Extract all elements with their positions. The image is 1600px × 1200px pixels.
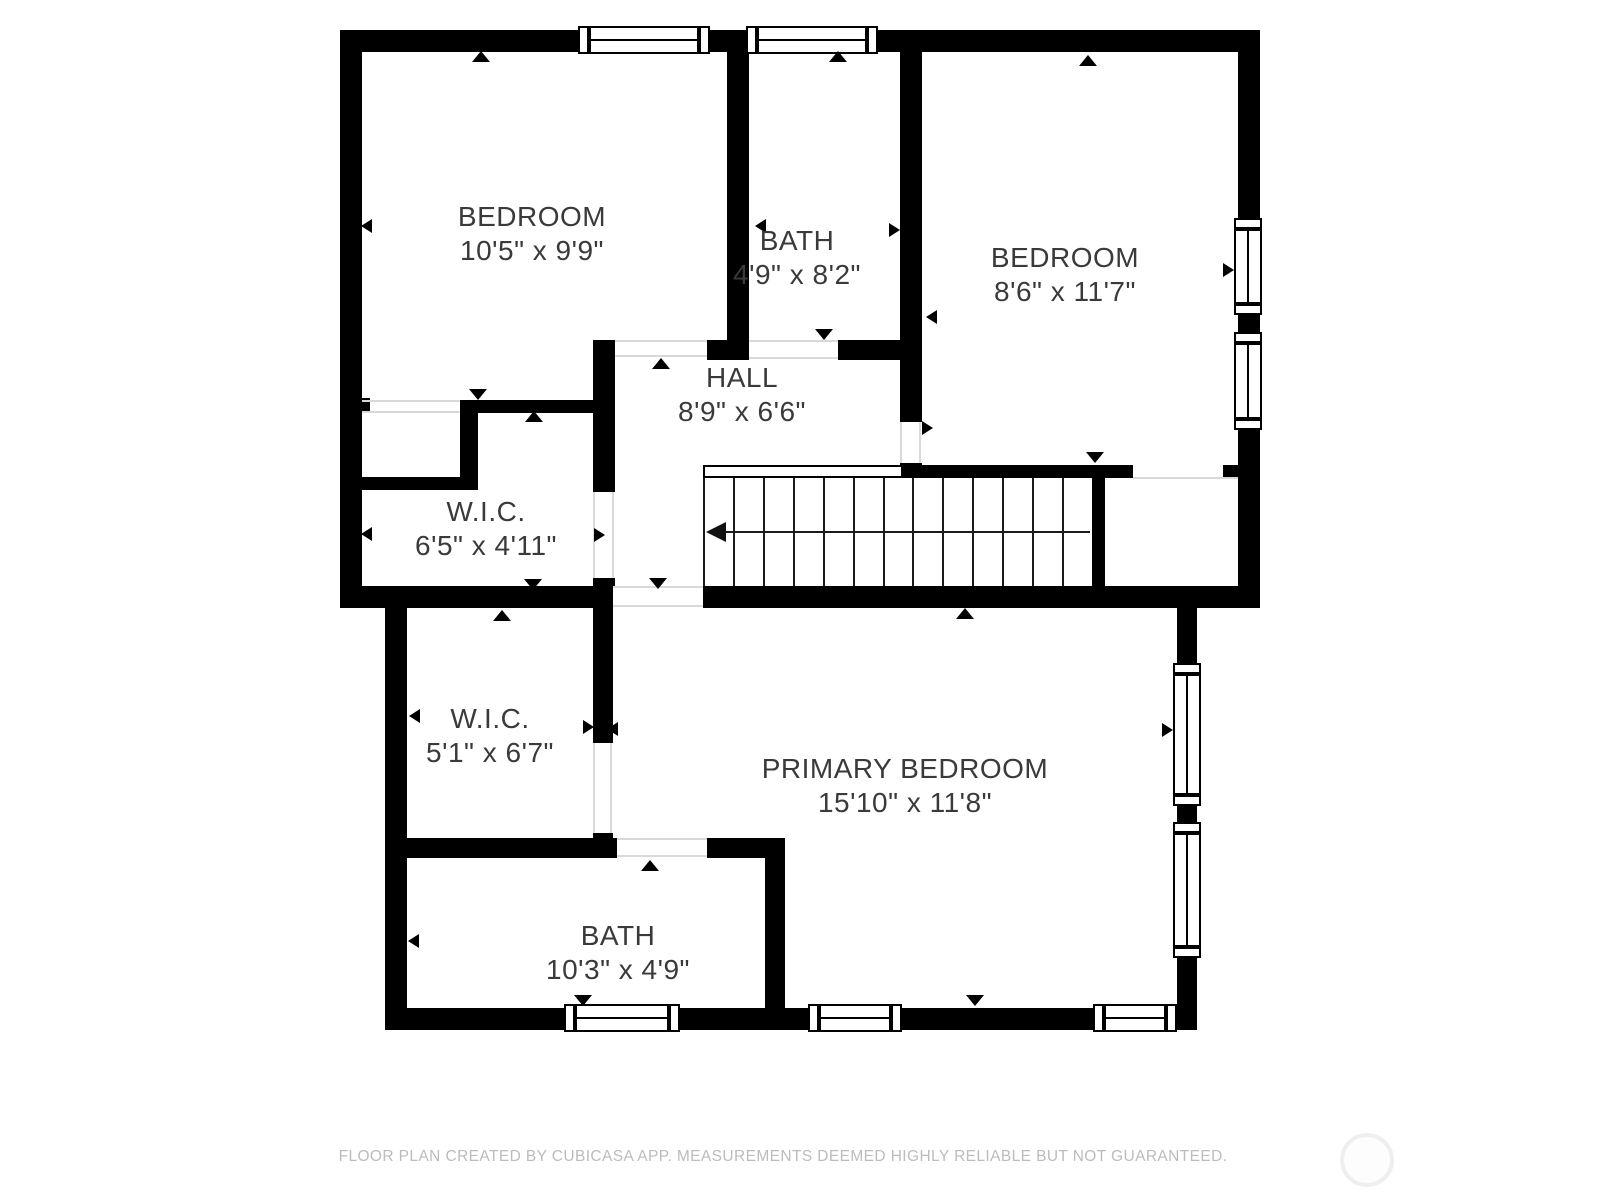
- window-frame-cap: [1175, 831, 1199, 835]
- window-frame-cap: [667, 1006, 671, 1030]
- room-label-hall: HALL 8'9" x 6'6": [678, 361, 806, 429]
- wall: [707, 340, 749, 360]
- door-marker-up-icon: [525, 411, 543, 422]
- disclaimer-text: FLOOR PLAN CREATED BY CUBICASA APP. MEAS…: [339, 1148, 1228, 1166]
- room-label-bedroom-top-right: BEDROOM 8'6" x 11'7": [991, 241, 1139, 309]
- door-marker-down-icon: [491, 840, 509, 851]
- room-name: BATH: [546, 919, 690, 953]
- wall: [1238, 30, 1260, 608]
- room-name: BEDROOM: [991, 241, 1139, 275]
- stairs-direction-line: [714, 531, 1090, 533]
- wall: [407, 838, 617, 858]
- wall: [900, 465, 1133, 478]
- window-frame-cap: [1236, 302, 1260, 306]
- window-frame-cap: [865, 28, 869, 52]
- wall: [727, 52, 749, 340]
- door-marker-right-icon: [889, 223, 900, 237]
- door-marker-right-icon: [594, 528, 605, 542]
- door-marker-right-icon: [922, 421, 933, 435]
- door-opening-line: [749, 357, 838, 359]
- wall: [1092, 478, 1105, 586]
- window-symbol: [1093, 1004, 1177, 1032]
- door-opening-line: [362, 411, 460, 413]
- door-opening-line: [593, 743, 595, 833]
- room-name: W.I.C.: [415, 495, 557, 529]
- cubicasa-watermark-icon: [1340, 1133, 1394, 1187]
- wall: [340, 586, 613, 608]
- window-glass-line: [820, 1017, 890, 1019]
- wall: [765, 838, 785, 1008]
- wall: [703, 586, 1260, 608]
- room-name: BATH: [733, 224, 861, 258]
- door-marker-right-icon: [1223, 263, 1234, 277]
- window-glass-line: [1186, 675, 1188, 794]
- room-label-bath-top: BATH 4'9" x 8'2": [733, 224, 861, 292]
- door-marker-up-icon: [641, 860, 659, 871]
- room-label-bedroom-top-left: BEDROOM 10'5" x 9'9": [458, 200, 606, 268]
- wall: [362, 477, 478, 490]
- door-opening-line: [613, 605, 703, 607]
- door-opening-line: [919, 422, 921, 463]
- window-symbol: [564, 1004, 680, 1032]
- window-symbol: [1173, 822, 1201, 958]
- window-frame-cap: [573, 1006, 577, 1030]
- window-frame-cap: [697, 28, 701, 52]
- room-label-primary-bedroom: PRIMARY BEDROOM 15'10" x 11'8": [762, 752, 1049, 820]
- door-marker-down-icon: [649, 578, 667, 589]
- wall: [340, 30, 362, 608]
- room-label-wic-lower: W.I.C. 5'1" x 6'7": [426, 702, 554, 770]
- window-symbol: [578, 26, 710, 54]
- window-frame-cap: [1236, 417, 1260, 421]
- wall: [593, 578, 615, 588]
- door-marker-right-icon: [1162, 723, 1173, 737]
- window-frame-cap: [1236, 341, 1260, 345]
- door-marker-up-icon: [1079, 55, 1097, 66]
- window-symbol: [808, 1004, 902, 1032]
- window-glass-line: [576, 1017, 668, 1019]
- window-frame-cap: [1175, 672, 1199, 676]
- door-marker-left-icon: [408, 934, 419, 948]
- window-frame-cap: [1175, 793, 1199, 797]
- door-marker-left-icon: [361, 527, 372, 541]
- window-frame-cap: [889, 1006, 893, 1030]
- floor-plan-canvas: BEDROOM 10'5" x 9'9" BATH 4'9" x 8'2" BE…: [0, 0, 1600, 1200]
- window-symbol: [1234, 218, 1262, 315]
- door-marker-left-icon: [409, 709, 420, 723]
- door-opening-line: [615, 340, 707, 342]
- wall: [385, 608, 407, 1030]
- room-dimensions: 8'9" x 6'6": [678, 395, 806, 429]
- window-glass-line: [758, 39, 866, 41]
- window-frame-cap: [755, 28, 759, 52]
- door-marker-down-icon: [524, 579, 542, 590]
- door-marker-up-icon: [493, 610, 511, 621]
- room-dimensions: 6'5" x 4'11": [415, 529, 557, 563]
- wall: [900, 52, 922, 340]
- stair-railing: [703, 465, 903, 478]
- room-dimensions: 10'3" x 4'9": [546, 953, 690, 987]
- stair-tread-line: [703, 478, 705, 586]
- door-marker-left-icon: [361, 219, 372, 233]
- room-name: BEDROOM: [458, 200, 606, 234]
- door-marker-up-icon: [956, 608, 974, 619]
- room-dimensions: 15'10" x 11'8": [762, 786, 1049, 820]
- window-frame-cap: [1164, 1006, 1168, 1030]
- window-glass-line: [1105, 1017, 1165, 1019]
- door-marker-down-icon: [966, 995, 984, 1006]
- window-symbol: [1234, 332, 1262, 430]
- door-opening-line: [749, 340, 838, 342]
- window-symbol: [1173, 663, 1201, 806]
- door-marker-up-icon: [652, 358, 670, 369]
- room-label-wic-upper: W.I.C. 6'5" x 4'11": [415, 495, 557, 563]
- room-name: W.I.C.: [426, 702, 554, 736]
- door-opening-line: [612, 492, 614, 578]
- door-marker-down-icon: [815, 329, 833, 340]
- room-dimensions: 10'5" x 9'9": [458, 234, 606, 268]
- door-opening-line: [617, 838, 707, 840]
- window-frame-cap: [817, 1006, 821, 1030]
- window-frame-cap: [1236, 227, 1260, 231]
- wall: [385, 1008, 1197, 1030]
- room-dimensions: 5'1" x 6'7": [426, 736, 554, 770]
- door-marker-up-icon: [829, 51, 847, 62]
- door-opening-line: [362, 400, 460, 402]
- window-glass-line: [590, 39, 698, 41]
- window-glass-line: [1247, 344, 1249, 418]
- wall: [900, 340, 922, 422]
- door-marker-up-icon: [472, 51, 490, 62]
- stairs-direction-arrow-icon: [706, 522, 726, 542]
- window-glass-line: [1247, 230, 1249, 303]
- door-marker-down-icon: [1086, 452, 1104, 463]
- door-marker-right-icon: [583, 720, 594, 734]
- room-label-bath-lower: BATH 10'3" x 4'9": [546, 919, 690, 987]
- room-dimensions: 4'9" x 8'2": [733, 258, 861, 292]
- wall: [593, 340, 615, 492]
- door-marker-down-icon: [574, 995, 592, 1006]
- door-opening-line: [615, 355, 707, 357]
- door-opening-line: [1133, 477, 1238, 479]
- door-opening-line: [617, 855, 707, 857]
- door-opening-line: [610, 743, 612, 833]
- room-name: PRIMARY BEDROOM: [762, 752, 1049, 786]
- door-marker-left-icon: [926, 310, 937, 324]
- window-frame-cap: [1102, 1006, 1106, 1030]
- window-frame-cap: [1175, 945, 1199, 949]
- door-marker-down-icon: [469, 389, 487, 400]
- door-opening-line: [900, 422, 902, 463]
- window-symbol: [746, 26, 878, 54]
- room-dimensions: 8'6" x 11'7": [991, 275, 1139, 309]
- window-glass-line: [1186, 834, 1188, 946]
- room-name: HALL: [678, 361, 806, 395]
- window-frame-cap: [587, 28, 591, 52]
- door-marker-left-icon: [607, 722, 618, 736]
